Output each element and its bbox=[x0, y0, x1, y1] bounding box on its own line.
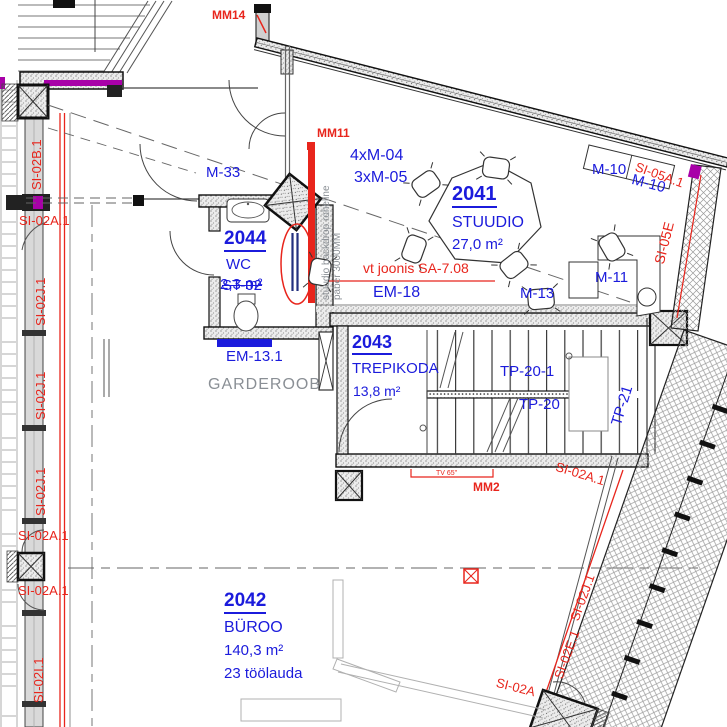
label-mm2: MM2 bbox=[473, 481, 500, 494]
room-area-byroo: 140,3 m² bbox=[224, 643, 283, 659]
floor-plan: M-33 2044 WC 2,3 m² ST-02 EM-13.1 GARDER… bbox=[0, 0, 727, 727]
office-furniture bbox=[241, 580, 546, 721]
label-si02j1-a: SI-02J.1 bbox=[34, 278, 48, 326]
label-vt-joonis: vt joonis SA-7.08 bbox=[363, 261, 469, 276]
label-garderoob: GARDEROOB bbox=[208, 377, 321, 394]
label-si02j1-c: SI-02J.1 bbox=[34, 468, 48, 516]
room-number-2044: 2044 bbox=[224, 229, 266, 252]
room-desks-byroo: 23 töölauda bbox=[224, 666, 302, 682]
top-left-wall bbox=[2, 72, 258, 121]
label-m11: M-11 bbox=[595, 270, 628, 286]
left-mid-column bbox=[7, 551, 44, 582]
label-si02b1: SI-02B.1 bbox=[30, 139, 44, 190]
room-number-2041: 2041 bbox=[452, 184, 497, 208]
label-m13: M-13 bbox=[520, 286, 554, 302]
label-si02a1-left-low: SI-02A.1 bbox=[18, 584, 69, 598]
label-mm11: MM11 bbox=[317, 127, 350, 140]
left-facade-ticks bbox=[1, 80, 17, 727]
room-name-byroo: BÜROO bbox=[224, 620, 283, 637]
label-si02a1-left-top: SI-02A.1 bbox=[19, 214, 70, 228]
backdrop-note: stuudio backdrop roheline paber 3000MM bbox=[322, 185, 343, 300]
label-em-18: EM-18 bbox=[373, 285, 420, 302]
room-name-wc: WC bbox=[226, 257, 251, 273]
label-st02: ST-02 bbox=[222, 278, 262, 294]
si-line-left bbox=[60, 113, 65, 727]
label-m10: M-10 bbox=[592, 162, 626, 178]
label-4xm04: 4xM-04 bbox=[350, 148, 403, 165]
label-si02j1-b: SI-02J.1 bbox=[34, 372, 48, 420]
label-m33: M-33 bbox=[206, 165, 240, 181]
room-number-2043: 2043 bbox=[352, 333, 392, 355]
top-sloped-wall bbox=[254, 38, 727, 170]
label-mm14: MM14 bbox=[212, 9, 245, 22]
label-tp-20: TP-20 bbox=[519, 397, 560, 413]
top-left-ramp bbox=[18, 0, 172, 73]
label-si02a1-left-mid: SI-02A.1 bbox=[18, 529, 69, 543]
room-area-trepikoda: 13,8 m² bbox=[353, 384, 400, 399]
room-number-2042: 2042 bbox=[224, 591, 266, 614]
room-name-stuudio: STUUDIO bbox=[452, 215, 524, 232]
room-name-trepikoda: TREPIKODA bbox=[352, 361, 439, 377]
m33-door bbox=[133, 144, 199, 206]
room-area-stuudio: 27,0 m² bbox=[452, 237, 503, 253]
label-3xm05: 3xM-05 bbox=[354, 170, 407, 187]
label-tv65: TV 65" bbox=[436, 470, 457, 477]
label-si02i1: SI-02I.1 bbox=[32, 657, 46, 703]
label-em-13-1: EM-13.1 bbox=[226, 349, 283, 365]
label-tp-20-1: TP-20-1 bbox=[500, 364, 554, 380]
